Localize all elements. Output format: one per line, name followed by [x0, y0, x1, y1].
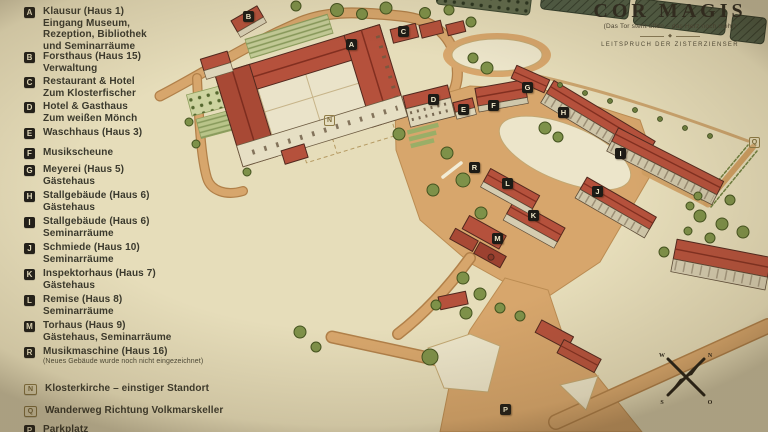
legend-item-remise: L Remise (Haus 8) Seminarräume: [24, 294, 122, 317]
map-marker-p: P: [500, 404, 511, 415]
title-block: COR MAGIS (Das Tor steht offen – das Her…: [572, 0, 768, 48]
legend-item-torhaus: M Torhaus (Haus 9) Gästehaus, Seminarräu…: [24, 320, 171, 343]
legend-item-musikscheune: F Musikscheune: [24, 147, 113, 159]
map-marker-d: D: [428, 94, 439, 105]
legend-marker-k: K: [24, 269, 35, 280]
map-marker-n: N: [324, 115, 335, 126]
title-main: COR MAGIS: [572, 0, 768, 22]
legend-marker-r: R: [24, 347, 35, 358]
legend-marker-p: P: [24, 425, 35, 432]
title-tagline: LEITSPRUCH DER ZISTERZIENSER: [572, 42, 768, 48]
legend-item-klosterkirche: N Klosterkirche – einstiger Standort: [24, 383, 209, 395]
legend-marker-g: G: [24, 165, 35, 176]
legend-marker-l: L: [24, 295, 35, 306]
map-marker-f: F: [488, 100, 499, 111]
legend-item-stall-i: I Stallgebäude (Haus 6) Seminarräume: [24, 216, 150, 239]
legend: A Klausur (Haus 1) Eingang Museum, Rezep…: [0, 0, 235, 432]
legend-item-forsthaus: B Forsthaus (Haus 15) Verwaltung: [24, 51, 141, 74]
legend-marker-a: A: [24, 7, 35, 18]
legend-item-waschhaus: E Waschhaus (Haus 3): [24, 127, 142, 139]
legend-item-schmiede: J Schmiede (Haus 10) Seminarräume: [24, 242, 140, 265]
compass-s-label: S: [660, 400, 664, 406]
building-right-edge: [671, 239, 768, 290]
legend-marker-d: D: [24, 102, 35, 113]
map-marker-e: E: [458, 104, 469, 115]
map-marker-i: I: [615, 148, 626, 159]
legend-item-inspektorhaus: K Inspektorhaus (Haus 7) Gästehaus: [24, 268, 156, 291]
map-marker-l: L: [502, 178, 513, 189]
map-marker-j: J: [592, 186, 603, 197]
map-marker-g: G: [522, 82, 533, 93]
compass-w-label: W: [659, 353, 665, 359]
legend-item-klosterfischer: C Restaurant & Hotel Zum Klosterfischer: [24, 76, 136, 99]
legend-marker-f: F: [24, 148, 35, 159]
title-subtitle: (Das Tor steht offen – das Herz noch meh…: [572, 23, 768, 30]
legend-marker-j: J: [24, 243, 35, 254]
legend-marker-m: M: [24, 321, 35, 332]
map-marker-m: M: [492, 233, 503, 244]
legend-marker-b: B: [24, 52, 35, 63]
legend-item-weisser-moench: D Hotel & Gasthaus Zum weißen Mönch: [24, 101, 137, 124]
legend-item-wanderweg: Q Wanderweg Richtung Volkmarskeller: [24, 405, 223, 417]
title-ornament: ◆: [572, 34, 768, 39]
legend-marker-e: E: [24, 128, 35, 139]
legend-item-klausur: A Klausur (Haus 1) Eingang Museum, Rezep…: [24, 6, 147, 52]
legend-item-parkplatz: P Parkplatz: [24, 424, 88, 432]
map-marker-h: H: [558, 107, 569, 118]
legend-marker-q: Q: [24, 406, 37, 417]
map-marker-b: B: [243, 11, 254, 22]
compass-n-label: N: [708, 353, 713, 359]
map-marker-r: R: [469, 162, 480, 173]
map-marker-a: A: [346, 39, 357, 50]
legend-marker-c: C: [24, 77, 35, 88]
map-marker-k: K: [528, 210, 539, 221]
legend-marker-h: H: [24, 191, 35, 202]
legend-item-musikmaschine: R Musikmaschine (Haus 16) (Neues Gebäude…: [24, 346, 203, 366]
map-marker-q: Q: [749, 137, 760, 148]
kloster-site-map-photo: N W S O A B C D E F G H I J K L M R N Q …: [0, 0, 768, 432]
map-marker-c: C: [398, 26, 409, 37]
legend-item-meyerei: G Meyerei (Haus 5) Gästehaus: [24, 164, 124, 187]
legend-item-stall-h: H Stallgebäude (Haus 6) Gästehaus: [24, 190, 150, 213]
legend-marker-n: N: [24, 384, 37, 395]
compass-e-label: O: [708, 400, 713, 406]
legend-marker-i: I: [24, 217, 35, 228]
